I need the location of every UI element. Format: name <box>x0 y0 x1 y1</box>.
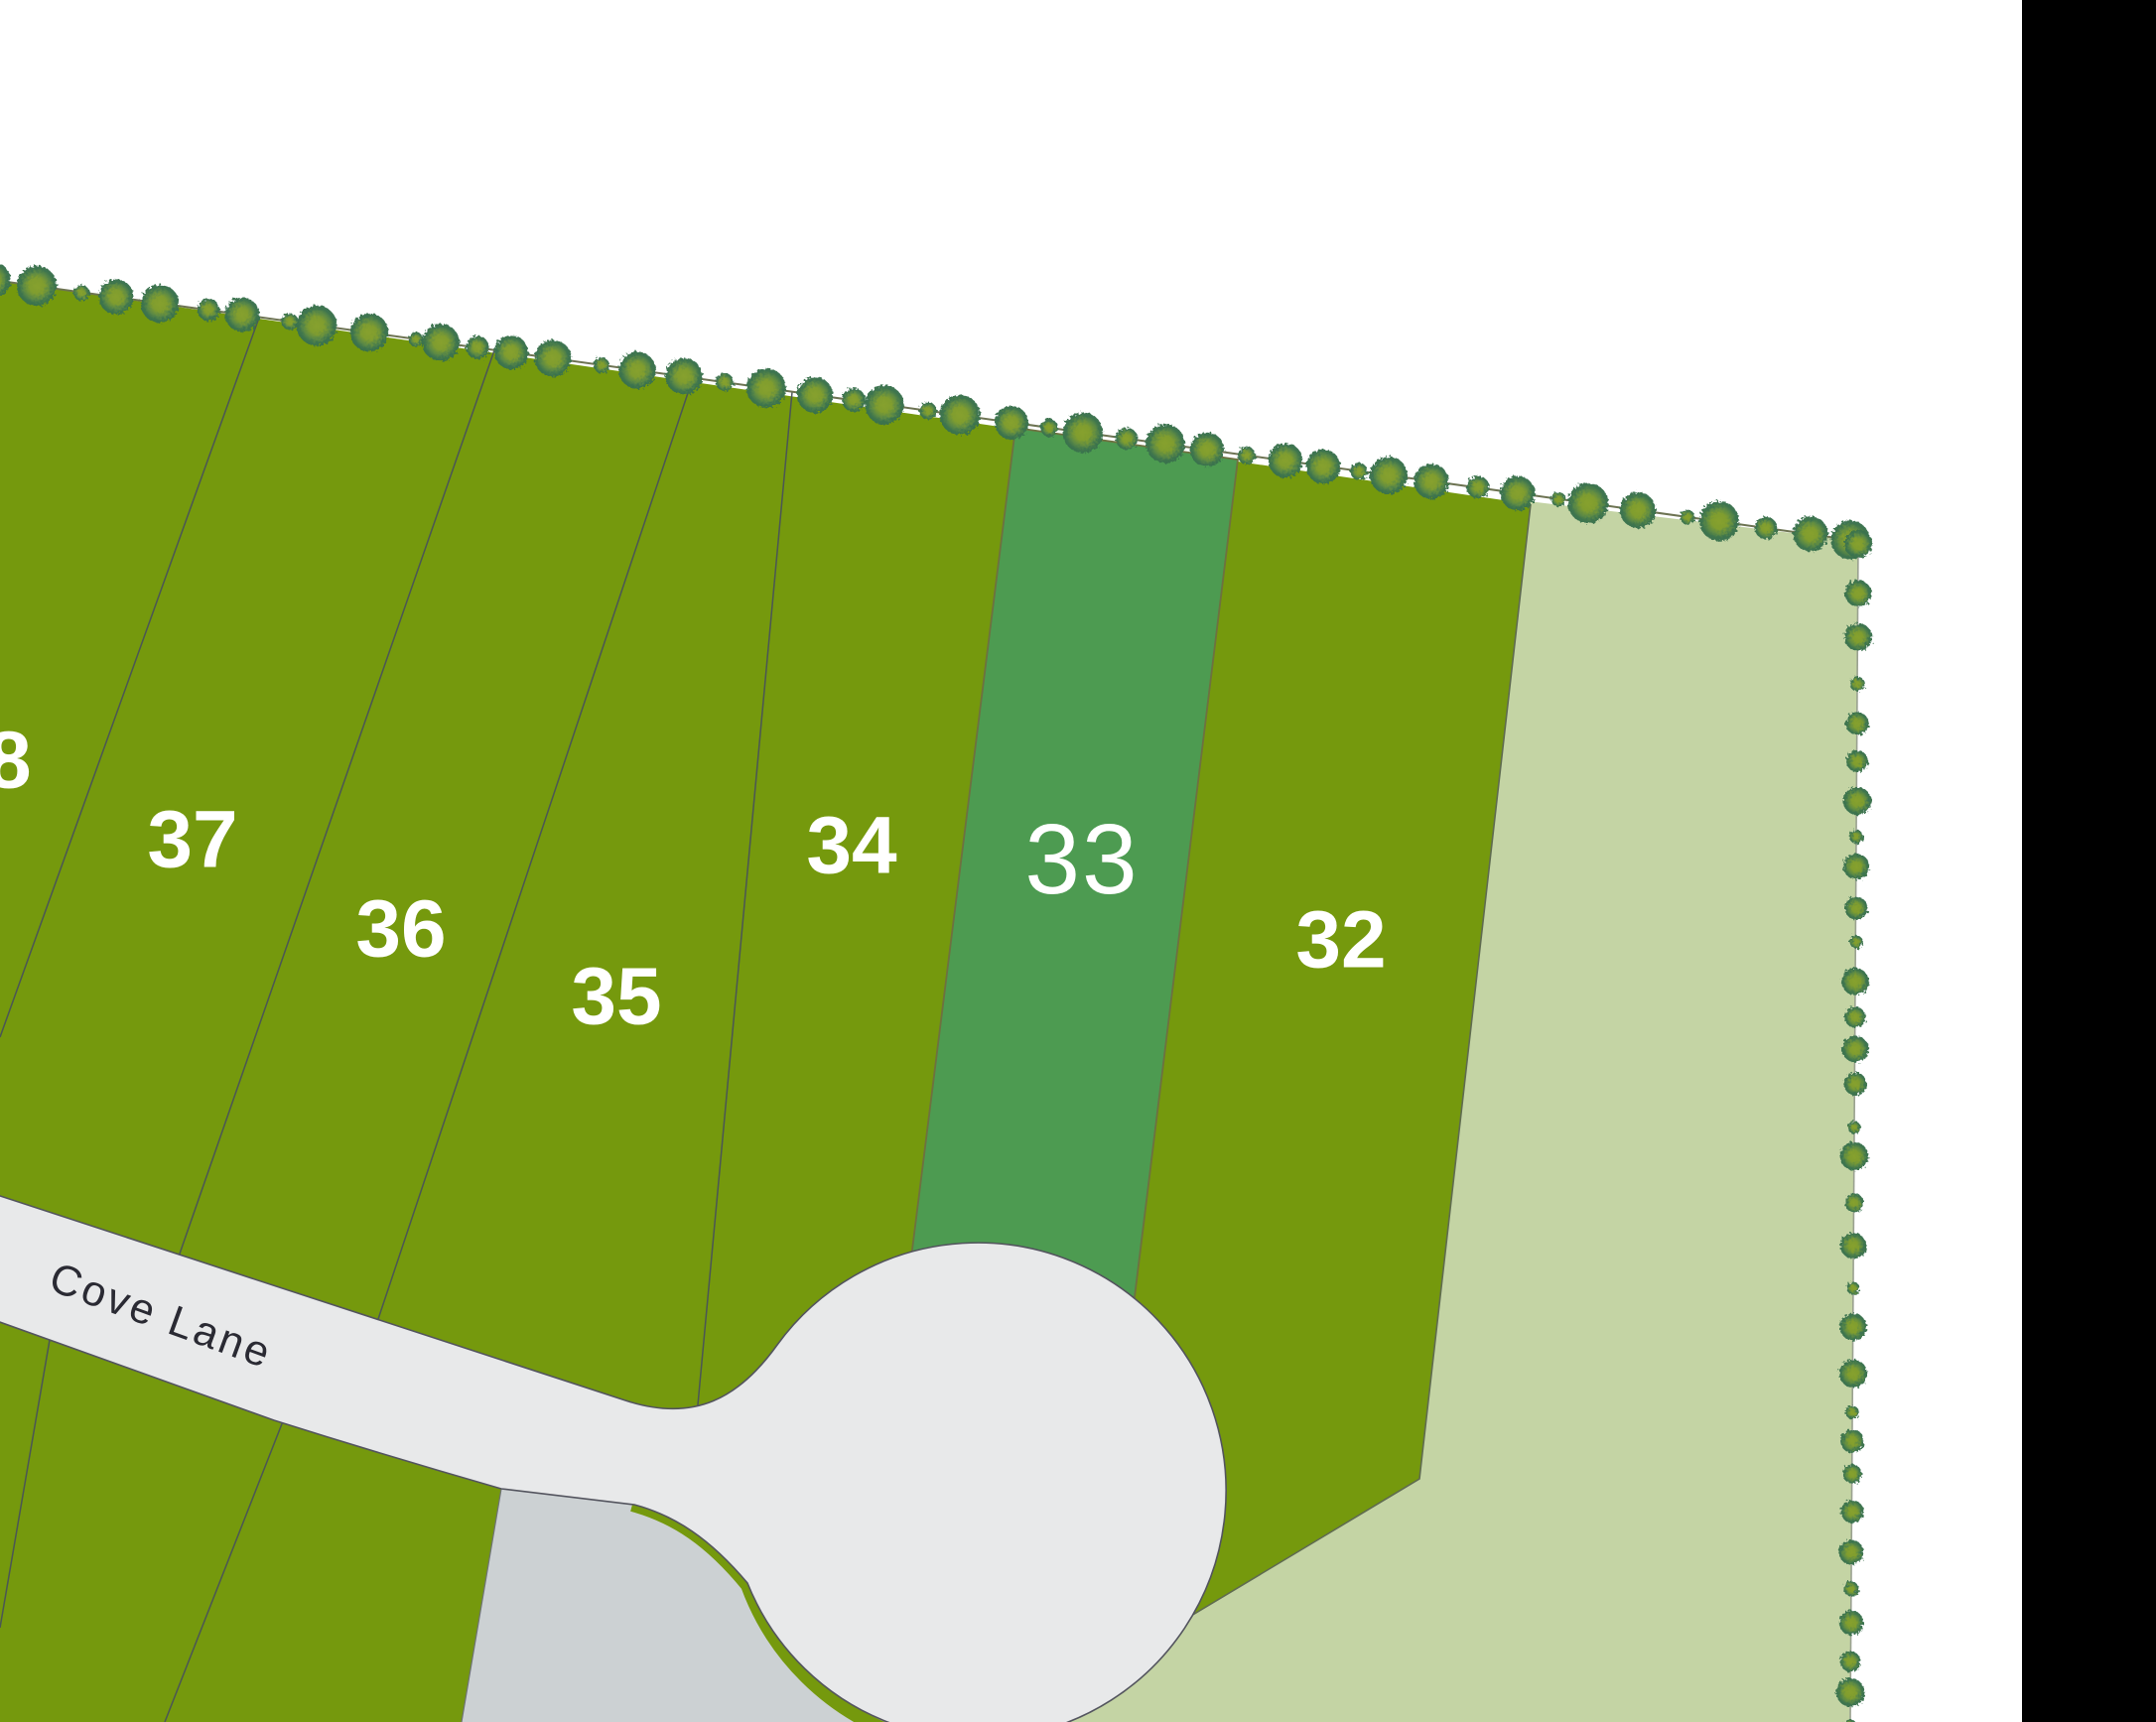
svg-text:37: 37 <box>147 795 237 885</box>
svg-text:38: 38 <box>0 716 32 806</box>
svg-text:33: 33 <box>1024 804 1139 915</box>
svg-text:36: 36 <box>355 884 446 975</box>
svg-text:32: 32 <box>1295 895 1386 986</box>
svg-text:34: 34 <box>806 801 897 891</box>
svg-text:35: 35 <box>571 952 661 1042</box>
